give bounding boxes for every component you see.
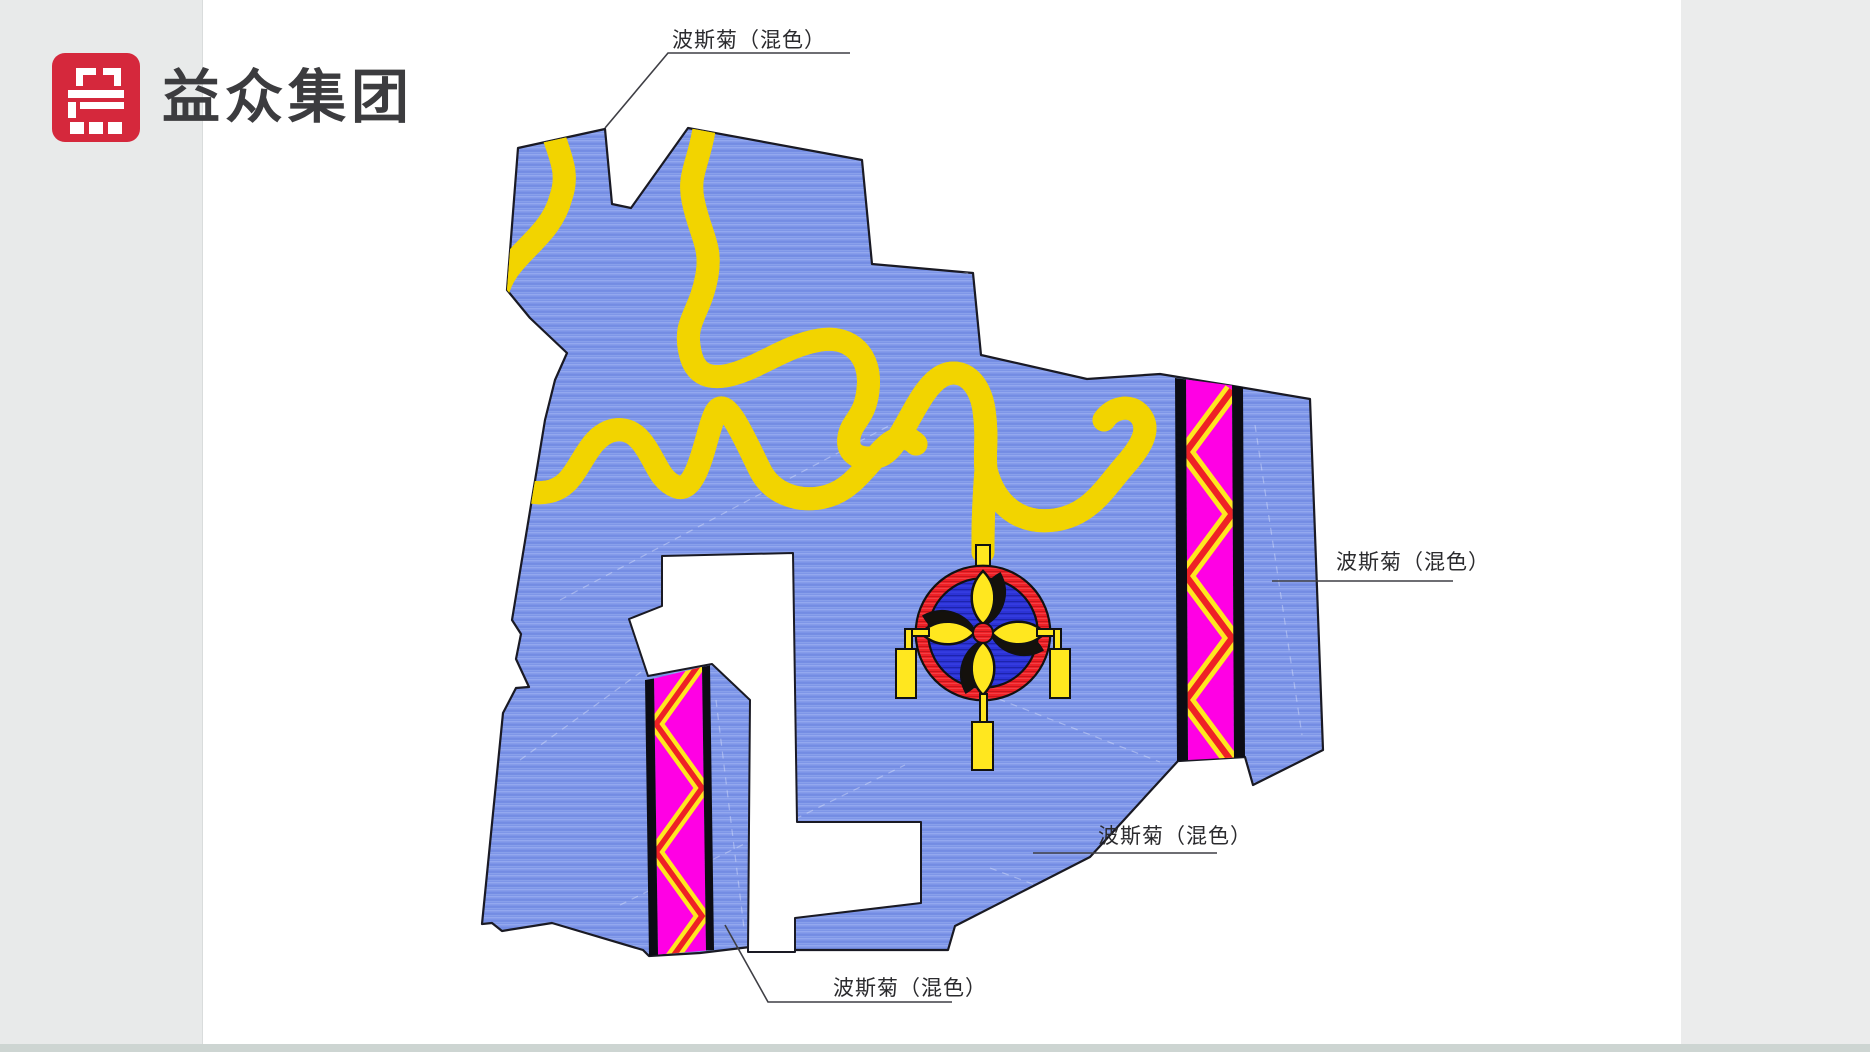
zigzag-border-band-left xyxy=(645,660,714,980)
planting-design-drawing xyxy=(0,0,1870,1052)
logo-seal-icon xyxy=(52,53,140,142)
zigzag-border-band-right xyxy=(1175,378,1245,762)
label-cosmos-top: 波斯菊（混色） xyxy=(672,24,826,54)
company-logo: 益众集团 xyxy=(52,53,414,142)
leader-line-top xyxy=(605,53,850,128)
label-cosmos-bottom: 波斯菊（混色） xyxy=(833,972,987,1002)
label-cosmos-middle: 波斯菊（混色） xyxy=(1098,820,1252,850)
company-name: 益众集团 xyxy=(162,53,414,142)
design-document-page: { "window": { "background_color": "#e8ea… xyxy=(0,0,1870,1052)
label-cosmos-right: 波斯菊（混色） xyxy=(1336,546,1490,576)
medallion-center-dot xyxy=(973,623,993,643)
